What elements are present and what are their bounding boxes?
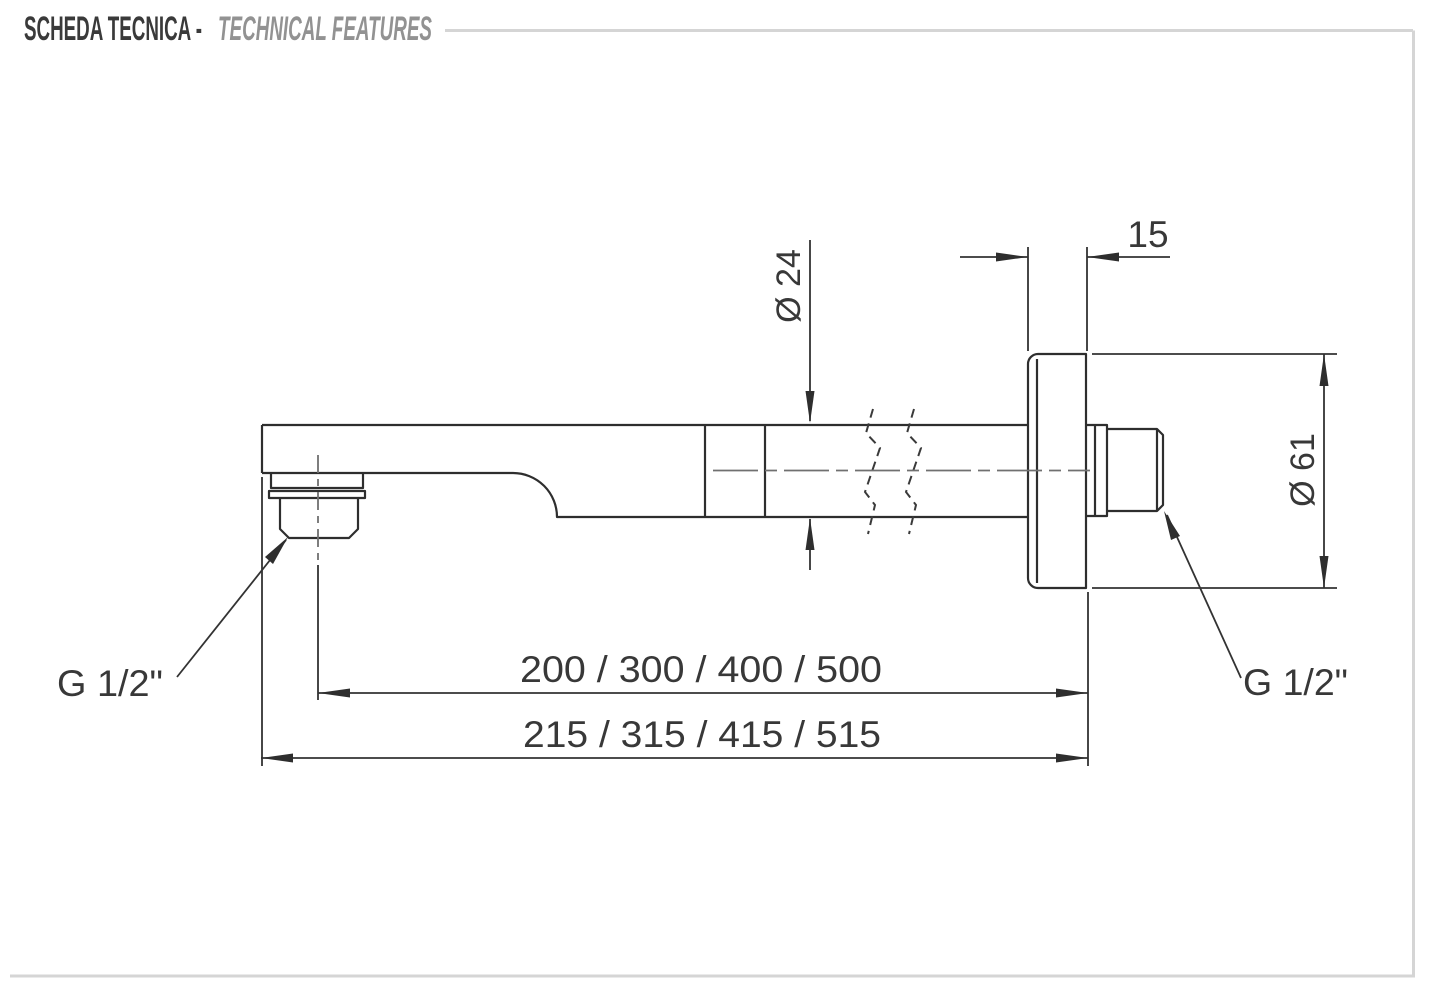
arm-bottom-edge	[262, 473, 1028, 517]
page-title: SCHEDA TECNICA -	[24, 10, 202, 48]
dim-overall-arrow-right	[1056, 754, 1088, 763]
wall-thread-label: G 1/2"	[1243, 662, 1348, 703]
leader-outlet-thread: G 1/2"	[57, 537, 288, 704]
dimension-arm-length: 200 / 300 / 400 / 500	[318, 565, 1088, 700]
dim-15-arrow-left	[996, 253, 1028, 262]
dim-arm-value: 200 / 300 / 400 / 500	[520, 649, 882, 690]
technical-drawing: SCHEDA TECNICA - TECHNICAL FEATURES	[0, 0, 1444, 1006]
dim-d24-value: Ø 24	[770, 249, 808, 323]
leader-right-arrow	[1164, 511, 1180, 540]
dim-15-lines	[960, 247, 1170, 351]
dim-overall-arrow-left	[261, 754, 293, 763]
break-mark-right	[906, 409, 921, 534]
dim-d24-arrow-down	[806, 391, 815, 423]
dim-arm-arrow-left	[318, 689, 350, 698]
dimension-arm-diameter: Ø 24	[770, 240, 815, 570]
dim-d61-value: Ø 61	[1284, 433, 1322, 507]
break-marks	[865, 409, 921, 534]
leader-wall-thread: G 1/2"	[1164, 511, 1348, 703]
dimension-flange-thickness: 15	[960, 214, 1170, 351]
dim-d24-arrow-up	[806, 518, 815, 550]
dimension-overall-length: 215 / 315 / 415 / 515	[261, 477, 1088, 766]
outlet-ring-upper	[271, 473, 363, 488]
dim-arm-arrow-right	[1056, 689, 1088, 698]
dim-overall-value: 215 / 315 / 415 / 515	[523, 714, 881, 755]
dim-15-value: 15	[1127, 214, 1168, 255]
leader-left-arrow	[265, 537, 288, 564]
page-subtitle: TECHNICAL FEATURES	[218, 10, 432, 48]
nipple-body	[1107, 429, 1163, 511]
page-header: SCHEDA TECNICA - TECHNICAL FEATURES	[24, 10, 432, 48]
break-mark-left	[865, 409, 880, 534]
outlet-thread-body	[280, 498, 358, 538]
outlet-thread-label: G 1/2"	[57, 663, 163, 704]
dimension-flange-diameter: Ø 61	[1092, 354, 1337, 588]
wall-thread-connector	[1086, 425, 1163, 516]
outlet-ring-lower	[269, 491, 365, 498]
dim-d61-arrow-up	[1320, 354, 1329, 386]
dim-d61-arrow-down	[1320, 556, 1329, 588]
page-frame	[10, 31, 1415, 977]
outlet-thread-connector	[269, 473, 365, 538]
dim-15-arrow-right	[1087, 253, 1119, 262]
leader-right-line	[1167, 515, 1241, 678]
